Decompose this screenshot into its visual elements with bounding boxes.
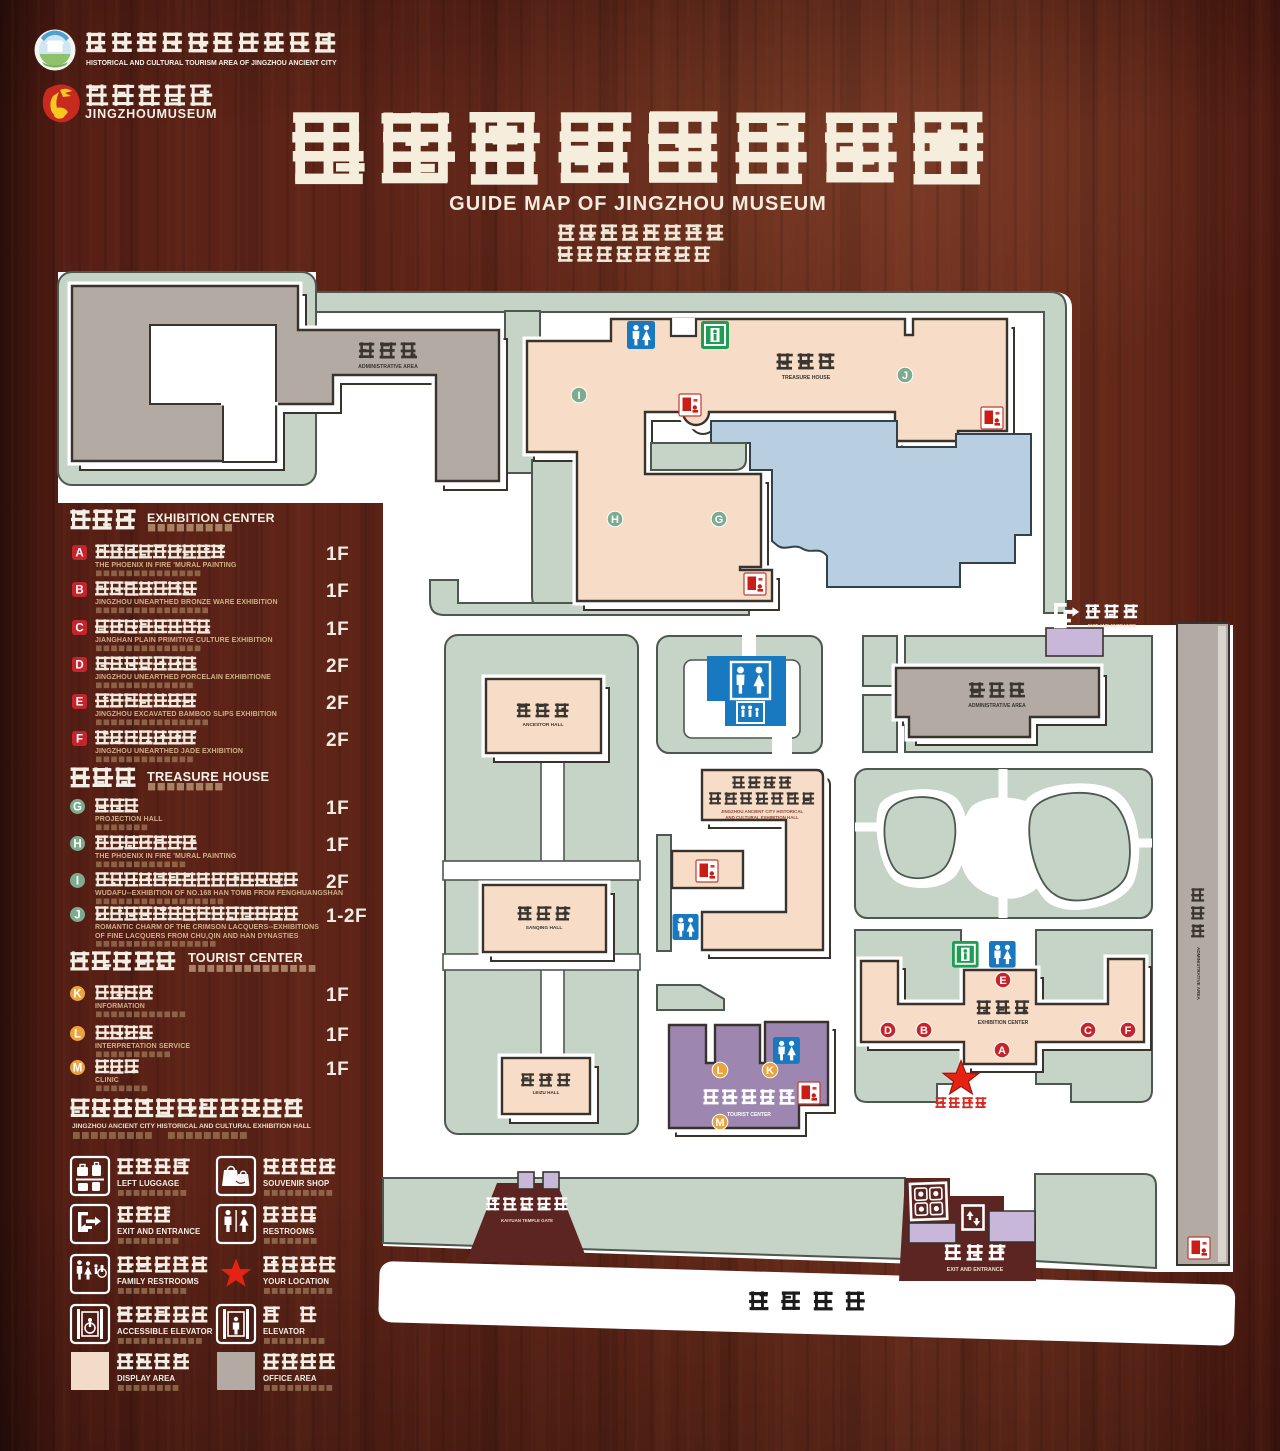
svg-text:L: L [74, 1028, 81, 1040]
svg-text:KAIYUAN TEMPLE GATE: KAIYUAN TEMPLE GATE [501, 1218, 553, 1223]
svg-text:D: D [75, 659, 83, 671]
svg-text:H: H [611, 514, 619, 526]
svg-text:C: C [75, 622, 83, 634]
svg-text:L: L [717, 1065, 724, 1077]
svg-text:GUIDE MAP OF JINGZHOU MUSEUM: GUIDE MAP OF JINGZHOU MUSEUM [449, 193, 827, 215]
svg-text:TREASURE HOUSE: TREASURE HOUSE [782, 375, 831, 381]
svg-text:1-2F: 1-2F [326, 906, 367, 927]
svg-text:ELEVATOR: ELEVATOR [263, 1327, 305, 1336]
svg-text:JINGZHOU ANCIENT CITY HISTORIC: JINGZHOU ANCIENT CITY HISTORICAL [721, 809, 804, 814]
svg-text:DISPLAY AREA: DISPLAY AREA [117, 1374, 175, 1383]
svg-text:ACCESSIBLE ELEVATOR: ACCESSIBLE ELEVATOR [117, 1327, 213, 1336]
svg-text:EXIT AND ENTRANCE: EXIT AND ENTRANCE [947, 1267, 1004, 1273]
svg-text:I: I [577, 390, 580, 402]
svg-text:JINGZHOU UNEARTHED BRONZE WARE: JINGZHOU UNEARTHED BRONZE WARE EXHIBITIO… [95, 599, 278, 606]
svg-text:JINGZHOUMUSEUM: JINGZHOUMUSEUM [85, 107, 217, 121]
svg-text:THE PHOENIX IN FIRE 'MURAL PAI: THE PHOENIX IN FIRE 'MURAL PAINTING [95, 562, 237, 569]
svg-text:OFFICE AREA: OFFICE AREA [263, 1374, 317, 1383]
svg-text:K: K [766, 1065, 774, 1077]
svg-text:D: D [884, 1025, 892, 1037]
svg-text:YOUR LOCATION: YOUR LOCATION [263, 1277, 329, 1286]
svg-text:HISTORICAL AND CULTURAL TOURIS: HISTORICAL AND CULTURAL TOURISM AREA OF … [86, 60, 337, 67]
svg-text:SOUVENIR SHOP: SOUVENIR SHOP [263, 1179, 329, 1188]
svg-text:ROMANTIC CHARM OF THE CRIMSON: ROMANTIC CHARM OF THE CRIMSON LACQUERS--… [95, 924, 319, 931]
svg-text:1F: 1F [326, 1059, 349, 1080]
svg-text:WUDAFU--EXHIBITION OF NO.168 H: WUDAFU--EXHIBITION OF NO.168 HAN TOMB FR… [95, 890, 343, 897]
svg-text:C: C [1084, 1025, 1092, 1037]
svg-text:JINGZHOU EXCAVATED BAMBOO SLIP: JINGZHOU EXCAVATED BAMBOO SLIPS EXHIBITI… [95, 711, 277, 718]
svg-text:ANCESTOR HALL: ANCESTOR HALL [523, 722, 564, 728]
svg-text:CLINIC: CLINIC [95, 1077, 119, 1084]
svg-text:1F: 1F [326, 544, 349, 565]
svg-text:THE PHOENIX IN FIRE 'MURAL PAI: THE PHOENIX IN FIRE 'MURAL PAINTING [95, 853, 237, 860]
svg-text:AND CULTURAL EXHIBITION HALL: AND CULTURAL EXHIBITION HALL [725, 815, 799, 820]
svg-text:JIANGHAN PLAIN PRIMITIVE CULTU: JIANGHAN PLAIN PRIMITIVE CULTURE EXHIBIT… [95, 637, 273, 644]
svg-text:A: A [998, 1045, 1006, 1057]
svg-text:RESTROOMS: RESTROOMS [263, 1227, 314, 1236]
svg-text:1F: 1F [326, 581, 349, 602]
svg-text:1F: 1F [326, 835, 349, 856]
svg-text:J: J [902, 370, 908, 382]
svg-text:PROJECTION HALL: PROJECTION HALL [95, 816, 163, 823]
svg-text:EXHIBITION CENTER: EXHIBITION CENTER [147, 511, 275, 525]
svg-text:2F: 2F [326, 656, 349, 677]
svg-text:ADMINISTRATIVE AREA: ADMINISTRATIVE AREA [968, 703, 1026, 709]
svg-text:K: K [73, 988, 82, 1000]
svg-text:1F: 1F [326, 1025, 349, 1046]
svg-text:ADMINISTRATIVE AREA: ADMINISTRATIVE AREA [358, 364, 418, 370]
svg-text:I: I [76, 875, 79, 887]
svg-text:B: B [75, 584, 83, 596]
svg-text:JINGZHOU UNEARTHED JADE EXHIBI: JINGZHOU UNEARTHED JADE EXHIBITION [95, 748, 243, 755]
svg-text:H: H [73, 838, 81, 850]
svg-text:B: B [920, 1025, 928, 1037]
svg-text:INTERPRETATION SERVICE: INTERPRETATION SERVICE [95, 1043, 190, 1050]
svg-text:2F: 2F [326, 872, 349, 893]
svg-text:M: M [715, 1117, 724, 1129]
svg-text:LEFT LUGGAGE: LEFT LUGGAGE [117, 1179, 179, 1188]
svg-text:J: J [74, 909, 80, 921]
svg-text:LEIZU HALL: LEIZU HALL [533, 1090, 560, 1095]
svg-text:ADMINISTRATIVE AREA: ADMINISTRATIVE AREA [1196, 947, 1201, 1001]
svg-text:G: G [715, 514, 724, 526]
svg-text:EXIT AND ENTRANCE: EXIT AND ENTRANCE [117, 1227, 200, 1236]
svg-text:1F: 1F [326, 619, 349, 640]
svg-text:1F: 1F [326, 985, 349, 1006]
svg-text:2F: 2F [326, 730, 349, 751]
svg-text:M: M [73, 1062, 83, 1074]
svg-text:A: A [75, 547, 83, 559]
svg-text:TREASURE HOUSE: TREASURE HOUSE [147, 769, 270, 784]
svg-text:E: E [999, 975, 1006, 987]
svg-text:TOURIST CENTER: TOURIST CENTER [188, 950, 303, 965]
svg-text:2F: 2F [326, 693, 349, 714]
svg-text:JINGZHOU UNEARTHED PORCELAIN E: JINGZHOU UNEARTHED PORCELAIN EXHIBITIONE [95, 674, 271, 681]
svg-text:INFORMATION: INFORMATION [95, 1003, 145, 1010]
svg-text:FAMILY RESTROOMS: FAMILY RESTROOMS [117, 1277, 199, 1286]
svg-text:1F: 1F [326, 798, 349, 819]
svg-text:JINGZHOU ANCIENT CITY HISTORIC: JINGZHOU ANCIENT CITY HISTORICAL AND CUL… [72, 1123, 311, 1130]
svg-text:OF FINE LACQUERS FROM CHU,QIN: OF FINE LACQUERS FROM CHU,QIN AND HAN DY… [95, 933, 299, 940]
svg-text:SANQING HALL: SANQING HALL [526, 925, 563, 931]
svg-text:F: F [76, 733, 83, 745]
svg-text:TOURIST CENTER: TOURIST CENTER [727, 1112, 771, 1118]
svg-text:EXHIBITION CENTER: EXHIBITION CENTER [978, 1020, 1029, 1026]
svg-text:E: E [76, 696, 84, 708]
svg-text:G: G [73, 801, 82, 813]
svg-text:F: F [1125, 1025, 1132, 1037]
